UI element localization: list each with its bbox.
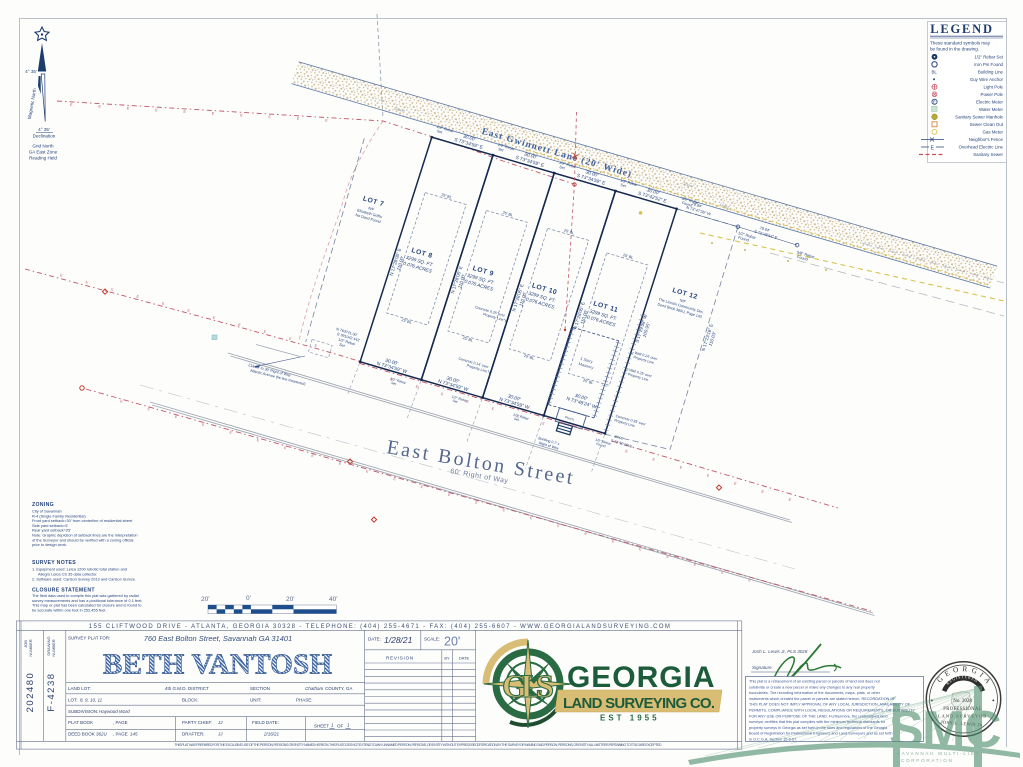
svg-text:Sewer Clean Out: Sewer Clean Out: [970, 122, 1004, 127]
svg-text:GLS: GLS: [502, 669, 554, 705]
svg-text:SECTION: SECTION: [250, 686, 270, 691]
svg-text:BY: BY: [444, 656, 450, 661]
svg-text:Building Line: Building Line: [978, 70, 1004, 75]
svg-text:SURVEY PLAT FOR:: SURVEY PLAT FOR:: [68, 636, 110, 641]
svg-text:Declination: Declination: [33, 134, 56, 139]
svg-text:instruments which created the: instruments which created the parcel or …: [749, 697, 896, 701]
svg-text:Set: Set: [436, 129, 443, 134]
svg-text:0': 0': [246, 595, 251, 602]
svg-text:20': 20': [444, 635, 460, 649]
svg-text:Overhead Electric Line: Overhead Electric Line: [959, 145, 1004, 150]
svg-text:1/28/21: 1/28/21: [384, 635, 413, 645]
svg-text:THIS PLAT WAS PREPARED FOR THE: THIS PLAT WAS PREPARED FOR THE EXCLUSIVE…: [175, 743, 662, 747]
svg-text:EEEEEEE: EEEEEEE: [390, 377, 568, 433]
svg-text:Water Meter: Water Meter: [979, 107, 1004, 112]
svg-text:boundaries. The recording info: boundaries. The recording information of…: [749, 691, 881, 695]
svg-text:subdivide or create a new parc: subdivide or create a new parcel or make…: [749, 685, 875, 689]
svg-text:Sanitary Sewer Manhole: Sanitary Sewer Manhole: [955, 115, 1003, 120]
svg-text:DATE:: DATE:: [368, 637, 381, 642]
svg-text:PLAT BOOK: PLAT BOOK: [68, 720, 93, 725]
svg-text:362U: 362U: [96, 732, 108, 737]
svg-text:760 East Bolton Street, Savann: 760 East Bolton Street, Savannah GA 3140…: [144, 634, 293, 643]
svg-text:COUNTY, GA: COUNTY, GA: [325, 686, 352, 691]
svg-text:These standard symbols may: These standard symbols may: [930, 41, 991, 46]
svg-text:155 CLIFTWOOD DRIVE - ATLANTA,: 155 CLIFTWOOD DRIVE - ATLANTA, GEORGIA 3…: [89, 624, 671, 630]
svg-text:25' BL: 25' BL: [582, 378, 593, 385]
svg-text:20': 20': [286, 596, 294, 603]
svg-text:E: E: [931, 145, 935, 151]
svg-text:FOR ANY USE OR PURPOSE OF THE: FOR ANY USE OR PURPOSE OF THE LAND. Furt…: [749, 714, 888, 718]
svg-text:LEGEND: LEGEND: [930, 22, 994, 36]
svg-text:DATE: DATE: [459, 656, 470, 661]
svg-text:JJ: JJ: [217, 732, 223, 737]
svg-text:Porch: Porch: [564, 415, 574, 421]
svg-text:LOT 7: LOT 7: [362, 195, 385, 208]
svg-text:Iron Pin Found: Iron Pin Found: [974, 62, 1003, 67]
svg-text:Chatham: Chatham: [305, 686, 324, 691]
svg-text:BETH VANTOSH: BETH VANTOSH: [103, 649, 332, 681]
svg-text:EST 1955: EST 1955: [600, 714, 660, 723]
svg-text:LOT:: LOT:: [68, 697, 78, 702]
svg-text:Set: Set: [339, 343, 345, 348]
svg-text:1/2" Rebar Set: 1/2" Rebar Set: [974, 55, 1003, 60]
svg-text:Set: Set: [498, 147, 505, 152]
svg-text:OF: OF: [337, 724, 344, 729]
svg-text:Set: Set: [620, 183, 627, 188]
svg-text:prior to design work.: prior to design work.: [32, 542, 67, 547]
svg-text:GEORGIA: GEORGIA: [567, 661, 715, 694]
svg-text:202480: 202480: [25, 672, 36, 713]
svg-text:EEEEEEEEEE: EEEEEEEEEE: [70, 103, 354, 124]
svg-text:DEED BOOK: DEED BOOK: [68, 732, 95, 737]
svg-text:E: E: [933, 100, 936, 105]
svg-text:Sanitary Sewer: Sanitary Sewer: [973, 152, 1003, 157]
svg-text:Grid North: Grid North: [32, 144, 54, 149]
svg-text:4° 35': 4° 35': [25, 69, 37, 74]
svg-text:Guy Wire Anchor: Guy Wire Anchor: [970, 77, 1004, 82]
svg-text:25' BL: 25' BL: [462, 336, 473, 343]
svg-text:Power Pole: Power Pole: [981, 92, 1004, 97]
svg-text:PARTY CHIEF:: PARTY CHIEF:: [182, 720, 213, 725]
svg-text:1: 1: [331, 723, 334, 728]
svg-text:be accurate within one foot in: be accurate within one foot in 252,455 f…: [32, 607, 106, 612]
svg-text:LAND SURVEYING CO.: LAND SURVEYING CO.: [563, 695, 715, 712]
svg-text:GA East Zone: GA East Zone: [29, 150, 58, 155]
svg-text:25' BL: 25' BL: [401, 318, 412, 325]
svg-text:JJ: JJ: [217, 720, 223, 725]
svg-text:BL: BL: [932, 70, 938, 75]
svg-text:Magnetic North: Magnetic North: [27, 88, 37, 120]
svg-text:Signature: Signature: [752, 665, 772, 670]
svg-text:SURVEY NOTES: SURVEY NOTES: [32, 560, 76, 566]
svg-text:Neighbor's Fence: Neighbor's Fence: [969, 137, 1004, 142]
svg-text:4° 35': 4° 35': [38, 127, 50, 132]
svg-text:20': 20': [201, 596, 209, 603]
svg-text:ZONING: ZONING: [32, 502, 54, 508]
svg-text:4th G.M.D. DISTRICT: 4th G.M.D. DISTRICT: [165, 686, 209, 691]
svg-text:SCALE:: SCALE:: [424, 637, 440, 642]
svg-text:40': 40': [329, 596, 337, 603]
svg-text:CORPORATION: CORPORATION: [901, 758, 954, 763]
svg-text:145: 145: [130, 732, 138, 737]
svg-text:Reading Held: Reading Held: [29, 156, 57, 161]
svg-text:surveyor certifies that this p: surveyor certifies that this plat compli…: [749, 720, 886, 724]
svg-text:F-4238: F-4238: [46, 672, 57, 711]
svg-text:SUBDIVISION:: SUBDIVISION:: [68, 709, 98, 714]
svg-text:be found in the drawing.: be found in the drawing.: [930, 47, 979, 52]
svg-text:Set: Set: [559, 165, 566, 170]
svg-text:UNIT:: UNIT:: [250, 697, 261, 702]
svg-text:, PAGE: , PAGE: [113, 732, 128, 737]
svg-text:NUMBER: NUMBER: [51, 639, 56, 656]
svg-text:2. Software used: Carlson Sur: 2. Software used: Carlson Survey 2013 an…: [32, 577, 136, 582]
svg-text:, PAGE: , PAGE: [113, 720, 128, 725]
svg-text:SAVANNAH MULTI-LIST: SAVANNAH MULTI-LIST: [897, 751, 980, 756]
svg-text:REVISION: REVISION: [386, 656, 414, 661]
svg-text:DRAFTER:: DRAFTER:: [182, 732, 205, 737]
svg-text:FIELD DATE:: FIELD DATE:: [252, 720, 279, 725]
svg-text:LAND LOT:: LAND LOT:: [68, 686, 91, 691]
svg-text:25' BL: 25' BL: [523, 354, 534, 361]
svg-text:BLOCK:: BLOCK:: [182, 697, 199, 702]
svg-text:1: 1: [347, 723, 350, 728]
svg-text:8, 9, 10, 11: 8, 9, 10, 11: [80, 697, 103, 702]
svg-text:Light Pole: Light Pole: [983, 85, 1003, 90]
svg-text:Gas Meter: Gas Meter: [983, 130, 1004, 135]
svg-text:EEEEEEEEEEEEEEEEEEEEEEEE: EEEEEEEEEEEEEEEEEEEEEEEE: [120, 399, 777, 590]
svg-text:SHEET: SHEET: [314, 724, 329, 729]
svg-text:Haywood Ward: Haywood Ward: [99, 709, 130, 714]
svg-text:2/16/21: 2/16/21: [263, 732, 280, 737]
svg-text:Josh L. Lewis Jr, PLS 3028: Josh L. Lewis Jr, PLS 3028: [751, 649, 808, 654]
svg-text:Electric Meter: Electric Meter: [976, 100, 1003, 105]
svg-text:NUMBER: NUMBER: [28, 639, 33, 656]
svg-text:Allegro Leica CS 35 data colle: Allegro Leica CS 35 data collector.: [38, 571, 97, 576]
svg-text:EEEEEEEEEEE: EEEEEEEEEEE: [60, 273, 341, 354]
svg-text:This plat is a retracement of: This plat is a retracement of an existin…: [749, 680, 881, 684]
svg-text:PHASE:: PHASE:: [296, 697, 313, 702]
